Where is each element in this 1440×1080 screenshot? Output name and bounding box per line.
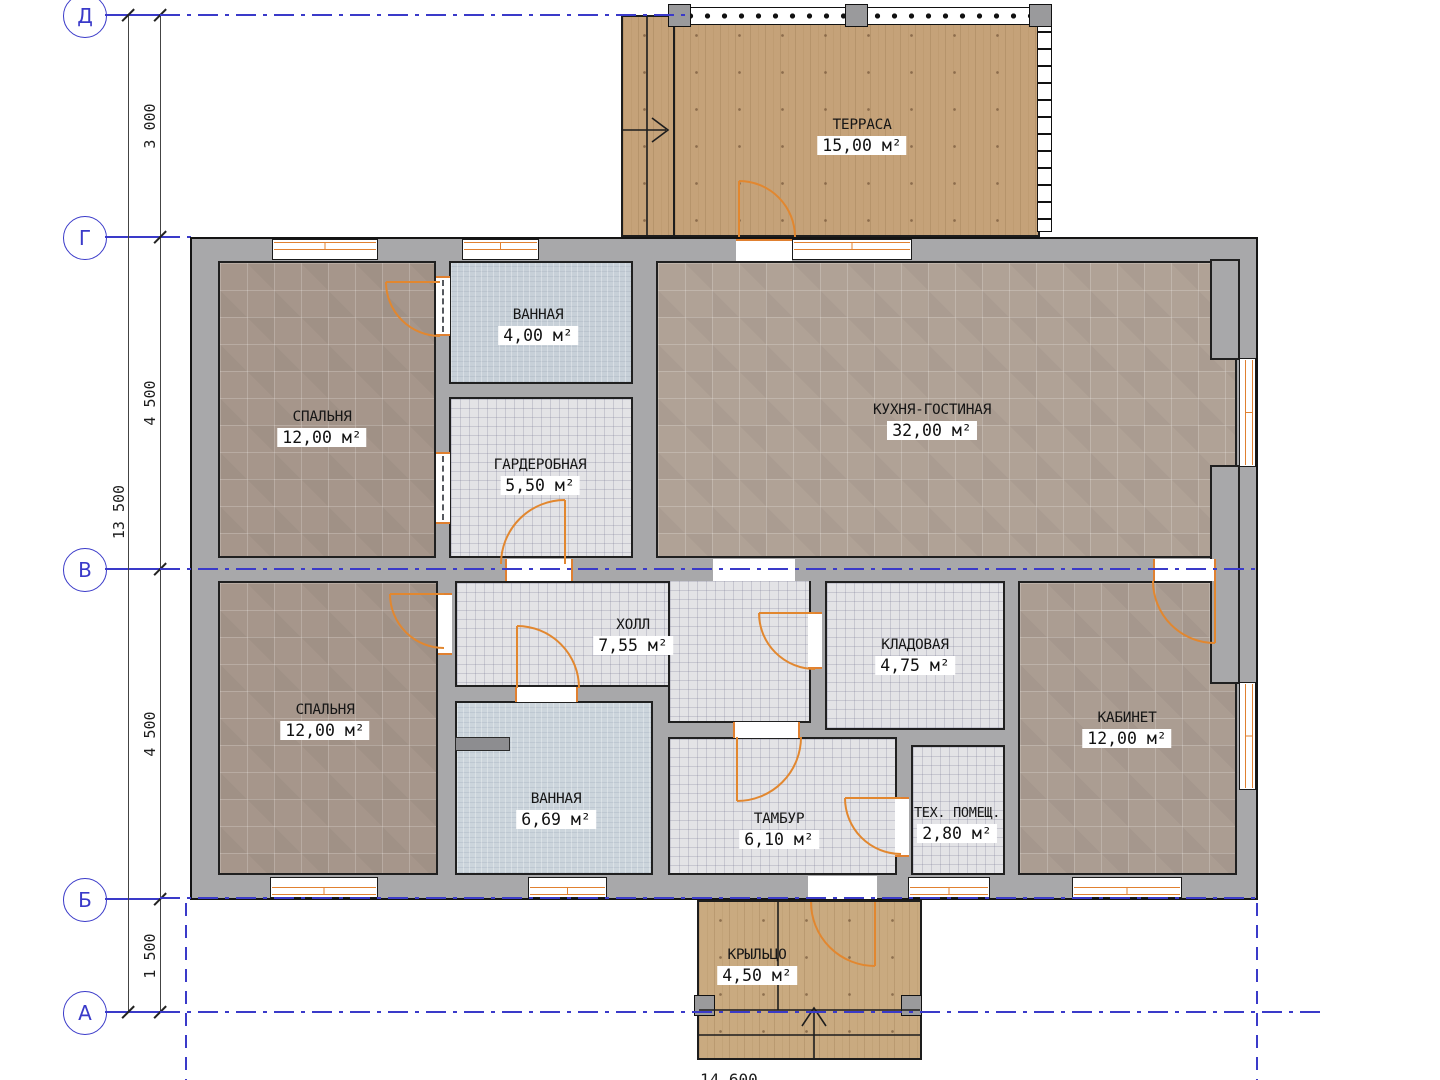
room-area: 5,50 м² bbox=[500, 476, 580, 495]
floor-plan: Д Г В Б А 13 500 3 000 4 500 4 500 1 500… bbox=[0, 0, 1440, 1080]
door-arc-tambour bbox=[737, 737, 801, 801]
door-arc-bedroom-top bbox=[386, 282, 440, 336]
room-label-bedroom-top: СПАЛЬНЯ 12,00 м² bbox=[277, 409, 366, 447]
axis-line-v bbox=[160, 568, 1258, 570]
room-label-cabinet: КАБИНЕТ 12,00 м² bbox=[1082, 710, 1171, 748]
room-area: 7,55 м² bbox=[593, 636, 673, 655]
room-label-terrace: ТЕРРАСА 15,00 м² bbox=[817, 117, 906, 155]
room-label-bedroom-bottom: СПАЛЬНЯ 12,00 м² bbox=[280, 702, 369, 740]
door-arc-porch bbox=[811, 902, 875, 966]
room-name: ВАННАЯ bbox=[498, 307, 578, 323]
room-label-bathroom-top: ВАННАЯ 4,00 м² bbox=[498, 307, 578, 345]
room-name: СПАЛЬНЯ bbox=[277, 409, 366, 425]
room-area: 4,50 м² bbox=[717, 966, 797, 985]
room-name: ГАРДЕРОБНАЯ bbox=[494, 457, 587, 473]
door-arc-tech bbox=[845, 798, 901, 854]
room-name: ТЕХ. ПОМЕЩ. bbox=[914, 805, 1000, 821]
room-area: 6,69 м² bbox=[516, 810, 596, 829]
room-label-pantry: КЛАДОВАЯ 4,75 м² bbox=[875, 637, 955, 675]
room-name: ТАМБУР bbox=[739, 811, 819, 827]
room-name: КЛАДОВАЯ bbox=[875, 637, 955, 653]
drawing-lines bbox=[621, 16, 920, 1058]
axis-line-b bbox=[160, 897, 1262, 899]
room-label-kitchen-living: КУХНЯ-ГОСТИНАЯ 32,00 м² bbox=[873, 402, 991, 440]
room-label-wardrobe: ГАРДЕРОБНАЯ 5,50 м² bbox=[494, 457, 587, 495]
room-name: КРЫЛЬЦО bbox=[717, 947, 797, 963]
room-label-tambour: ТАМБУР 6,10 м² bbox=[739, 811, 819, 849]
room-area: 4,00 м² bbox=[498, 326, 578, 345]
room-area: 12,00 м² bbox=[1082, 729, 1171, 748]
door-arc-bedroom-bottom bbox=[390, 594, 444, 648]
room-area: 6,10 м² bbox=[739, 830, 819, 849]
room-label-porch: КРЫЛЬЦО 4,50 м² bbox=[717, 947, 797, 985]
room-area: 2,80 м² bbox=[917, 824, 997, 843]
room-area: 15,00 м² bbox=[817, 136, 906, 155]
axis-line-vert-left bbox=[185, 903, 187, 1080]
room-name: СПАЛЬНЯ bbox=[280, 702, 369, 718]
door-arc-bathroom-bottom bbox=[517, 626, 579, 688]
room-area: 12,00 м² bbox=[277, 428, 366, 447]
axis-line-vert-right bbox=[1256, 903, 1258, 1080]
room-area: 12,00 м² bbox=[280, 721, 369, 740]
porch-entry-arrow bbox=[802, 1008, 826, 1058]
door-swing-overlay bbox=[0, 0, 1440, 1080]
room-name: ХОЛЛ bbox=[593, 617, 673, 633]
room-label-bathroom-bottom: ВАННАЯ 6,69 м² bbox=[516, 791, 596, 829]
room-area: 32,00 м² bbox=[887, 421, 976, 440]
room-label-hall: ХОЛЛ 7,55 м² bbox=[593, 617, 673, 655]
axis-line-a bbox=[160, 1011, 1322, 1013]
door-arc-pantry bbox=[759, 613, 815, 669]
room-name: КУХНЯ-ГОСТИНАЯ bbox=[873, 402, 991, 418]
door-arc-wardrobe bbox=[501, 500, 565, 564]
axis-line-d bbox=[160, 14, 690, 16]
room-name: ВАННАЯ bbox=[516, 791, 596, 807]
terrace-entry-arrow bbox=[621, 118, 668, 142]
room-name: КАБИНЕТ bbox=[1082, 710, 1171, 726]
room-area: 4,75 м² bbox=[875, 656, 955, 675]
door-arc-terrace bbox=[739, 181, 795, 237]
room-name: ТЕРРАСА bbox=[817, 117, 906, 133]
room-label-tech: ТЕХ. ПОМЕЩ. 2,80 м² bbox=[914, 805, 1000, 843]
door-arc-cabinet bbox=[1153, 581, 1215, 643]
